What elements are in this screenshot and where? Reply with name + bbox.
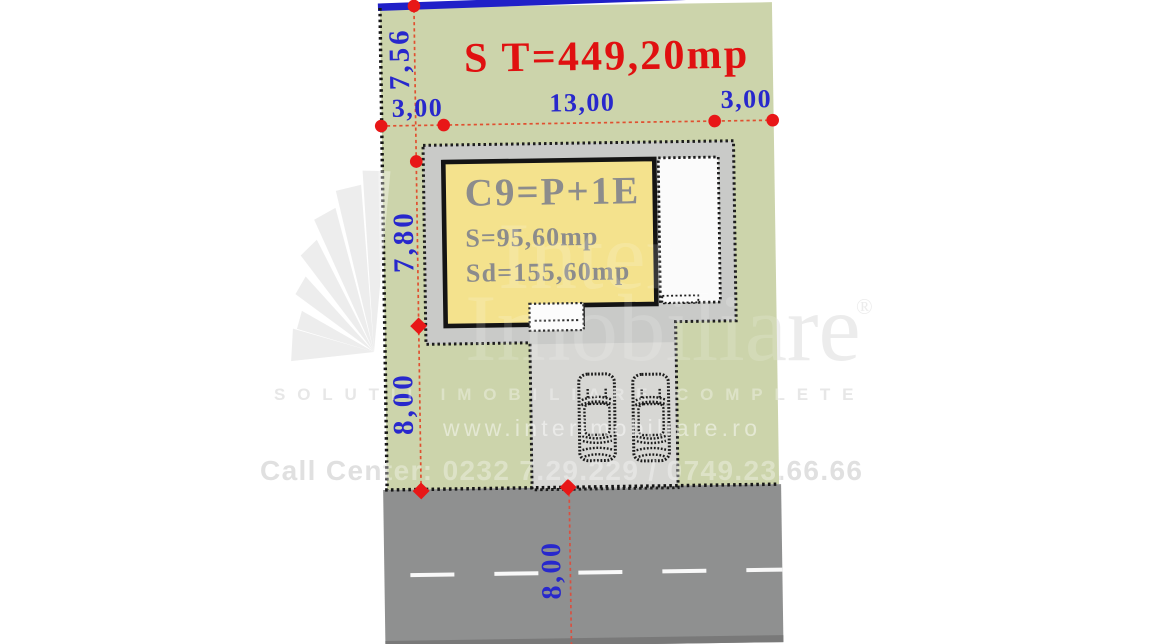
svg-text:8,00: 8,00 — [536, 540, 568, 599]
svg-text:S T=449,20mp: S T=449,20mp — [464, 32, 750, 82]
svg-text:13,00: 13,00 — [549, 88, 615, 118]
svg-text:7,80: 7,80 — [388, 210, 421, 273]
svg-text:®: ® — [856, 294, 873, 319]
svg-text:3,00: 3,00 — [720, 84, 772, 114]
svg-text:www.interimobiliare.ro: www.interimobiliare.ro — [442, 415, 759, 441]
svg-text:7,56: 7,56 — [383, 27, 416, 90]
svg-text:3,00: 3,00 — [391, 93, 443, 123]
